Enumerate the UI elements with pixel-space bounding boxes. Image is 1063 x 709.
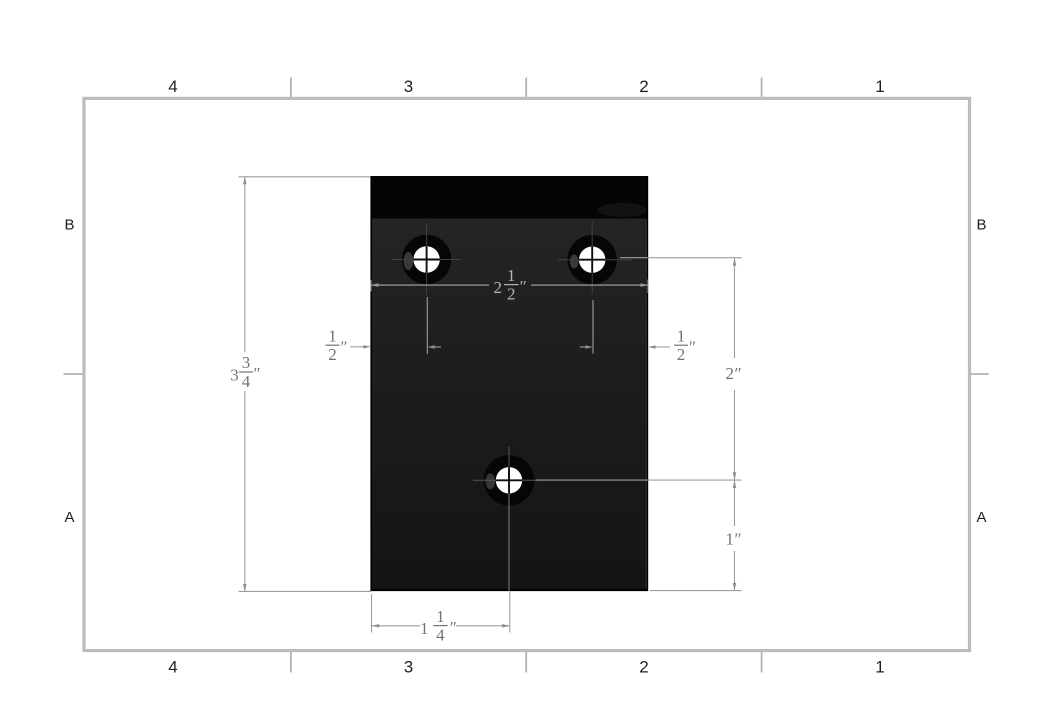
svg-text:″: ″ (735, 364, 742, 383)
svg-text:1: 1 (677, 326, 686, 345)
svg-text:2: 2 (507, 285, 516, 304)
svg-text:A: A (976, 509, 986, 526)
svg-text:2: 2 (328, 345, 337, 364)
svg-text:B: B (976, 216, 986, 233)
svg-text:2: 2 (494, 278, 503, 297)
svg-text:A: A (64, 509, 74, 526)
svg-text:1: 1 (507, 266, 516, 285)
svg-text:″: ″ (341, 338, 348, 357)
svg-text:B: B (64, 216, 74, 233)
svg-text:4: 4 (436, 626, 445, 645)
svg-text:3: 3 (242, 353, 251, 372)
svg-text:4: 4 (168, 77, 177, 96)
svg-text:2: 2 (677, 345, 686, 364)
svg-text:1: 1 (875, 77, 884, 96)
svg-text:3: 3 (404, 657, 413, 676)
svg-text:1: 1 (328, 326, 337, 345)
svg-text:1: 1 (726, 530, 735, 549)
svg-text:″: ″ (254, 364, 261, 383)
svg-text:″: ″ (450, 618, 457, 637)
svg-text:4: 4 (242, 372, 251, 391)
svg-text:3: 3 (230, 365, 239, 384)
svg-text:3: 3 (404, 77, 413, 96)
svg-text:1: 1 (436, 607, 445, 626)
svg-text:2: 2 (639, 657, 648, 676)
svg-text:2: 2 (726, 364, 735, 383)
svg-text:″: ″ (520, 277, 527, 296)
svg-text:2: 2 (639, 77, 648, 96)
svg-text:1: 1 (875, 657, 884, 676)
svg-text:″: ″ (689, 338, 696, 357)
svg-text:″: ″ (735, 530, 742, 549)
svg-text:4: 4 (168, 657, 177, 676)
svg-text:1: 1 (420, 619, 429, 638)
